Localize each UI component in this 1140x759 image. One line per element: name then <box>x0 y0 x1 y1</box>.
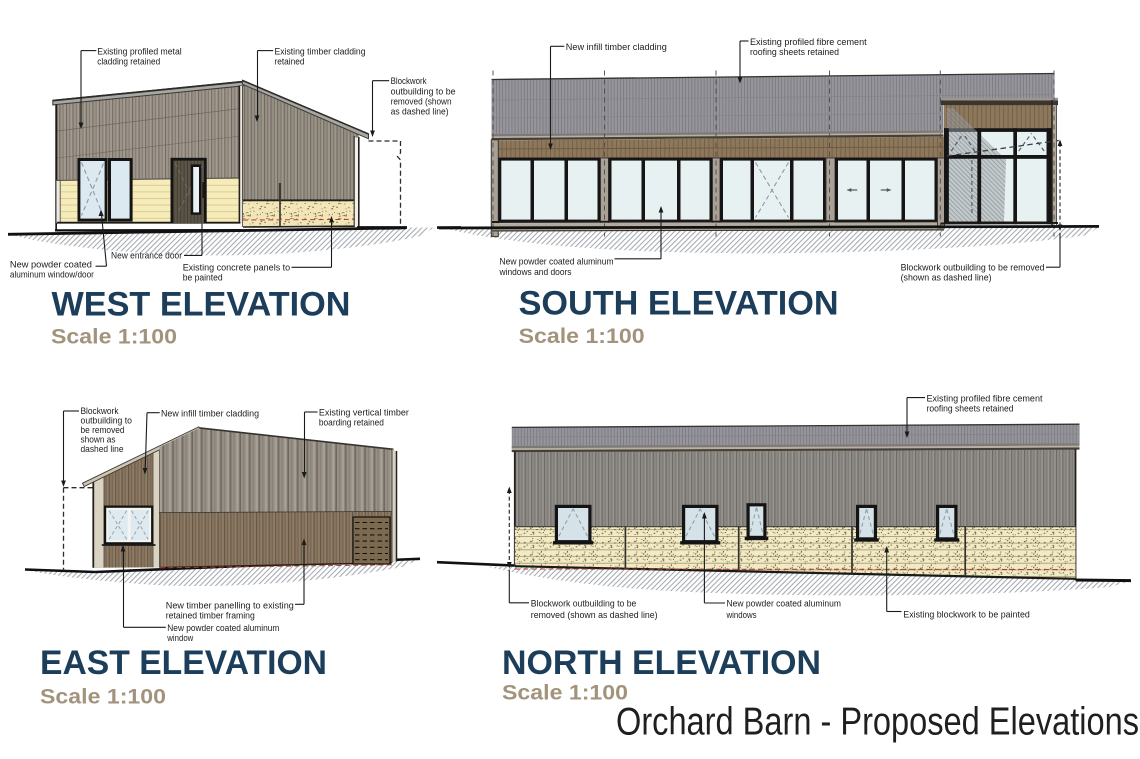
svg-text:Existing vertical timber: Existing vertical timber <box>319 408 409 418</box>
svg-text:New infill timber cladding: New infill timber cladding <box>161 408 259 418</box>
svg-text:Blockwork: Blockwork <box>391 76 427 86</box>
svg-text:cladding retained: cladding retained <box>97 57 160 67</box>
svg-text:outbuilding to: outbuilding to <box>81 416 133 426</box>
svg-text:Blockwork: Blockwork <box>81 406 119 416</box>
svg-text:aluminum window/door: aluminum window/door <box>10 270 94 280</box>
svg-text:shown as: shown as <box>81 435 116 445</box>
svg-text:as dashed line): as dashed line) <box>391 107 449 117</box>
svg-text:be painted: be painted <box>183 273 223 283</box>
svg-text:boarding retained: boarding retained <box>319 418 384 428</box>
svg-text:removed (shown as dashed line): removed (shown as dashed line) <box>531 610 658 620</box>
svg-text:NORTH ELEVATION: NORTH ELEVATION <box>502 644 821 682</box>
svg-text:removed (shown: removed (shown <box>391 97 452 107</box>
svg-text:windows and doors: windows and doors <box>499 267 572 277</box>
svg-text:New powder coated aluminum: New powder coated aluminum <box>727 598 841 608</box>
svg-text:outbuilding to be: outbuilding to be <box>391 86 456 96</box>
svg-text:New entrance door: New entrance door <box>111 251 182 261</box>
svg-text:Existing concrete panels to: Existing concrete panels to <box>183 262 291 272</box>
svg-text:New infill timber cladding: New infill timber cladding <box>566 42 667 52</box>
svg-text:roofing sheets retained: roofing sheets retained <box>927 404 1014 414</box>
svg-text:New powder coated aluminum: New powder coated aluminum <box>500 257 614 267</box>
svg-text:Existing profiled metal: Existing profiled metal <box>97 47 182 57</box>
svg-text:Existing timber cladding: Existing timber cladding <box>275 47 366 57</box>
svg-text:Scale 1:100: Scale 1:100 <box>502 681 628 705</box>
svg-text:retained timber framing: retained timber framing <box>166 611 255 621</box>
svg-text:Scale 1:100: Scale 1:100 <box>519 324 645 348</box>
svg-text:New timber panelling to existi: New timber panelling to existing <box>166 600 294 610</box>
svg-text:Existing blockwork to be paint: Existing blockwork to be painted <box>903 610 1030 620</box>
svg-text:retained: retained <box>275 57 305 67</box>
svg-text:Orchard Barn - Proposed Elevat: Orchard Barn - Proposed Elevations <box>616 701 1139 744</box>
svg-text:windows: windows <box>726 610 757 620</box>
svg-text:EAST ELEVATION: EAST ELEVATION <box>40 644 327 682</box>
svg-text:(shown as dashed line): (shown as dashed line) <box>901 273 992 283</box>
svg-text:Blockwork outbuilding to be: Blockwork outbuilding to be <box>531 598 637 608</box>
svg-text:Scale 1:100: Scale 1:100 <box>40 685 166 709</box>
svg-text:Existing profiled fibre cement: Existing profiled fibre cement <box>750 37 867 47</box>
svg-text:roofing sheets retained: roofing sheets retained <box>750 47 839 57</box>
svg-text:Existing profiled fibre cement: Existing profiled fibre cement <box>927 394 1043 404</box>
svg-text:be removed: be removed <box>81 425 125 435</box>
svg-text:SOUTH ELEVATION: SOUTH ELEVATION <box>519 285 839 323</box>
svg-text:Scale 1:100: Scale 1:100 <box>51 324 177 348</box>
svg-text:window: window <box>166 633 193 643</box>
svg-text:WEST ELEVATION: WEST ELEVATION <box>52 286 351 324</box>
svg-text:New powder coated aluminum: New powder coated aluminum <box>167 623 279 633</box>
svg-text:dashed line: dashed line <box>81 444 124 454</box>
svg-text:Blockwork outbuilding to be re: Blockwork outbuilding to be removed <box>901 262 1045 272</box>
svg-text:New powder coated: New powder coated <box>10 260 92 270</box>
